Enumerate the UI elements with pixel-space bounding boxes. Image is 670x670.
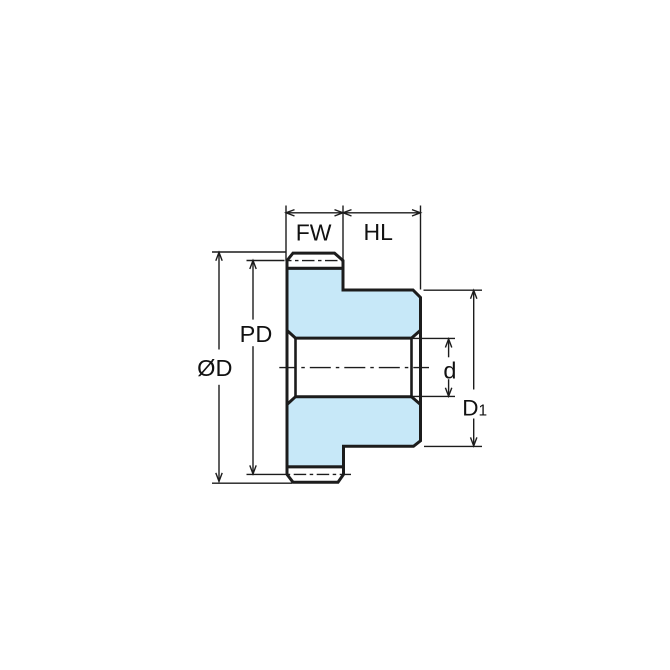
svg-text:HL: HL bbox=[363, 219, 393, 245]
svg-text:FW: FW bbox=[296, 219, 332, 245]
svg-text:PD: PD bbox=[240, 321, 273, 347]
svg-text:d: d bbox=[443, 358, 456, 384]
svg-text:ØD: ØD bbox=[197, 355, 232, 381]
